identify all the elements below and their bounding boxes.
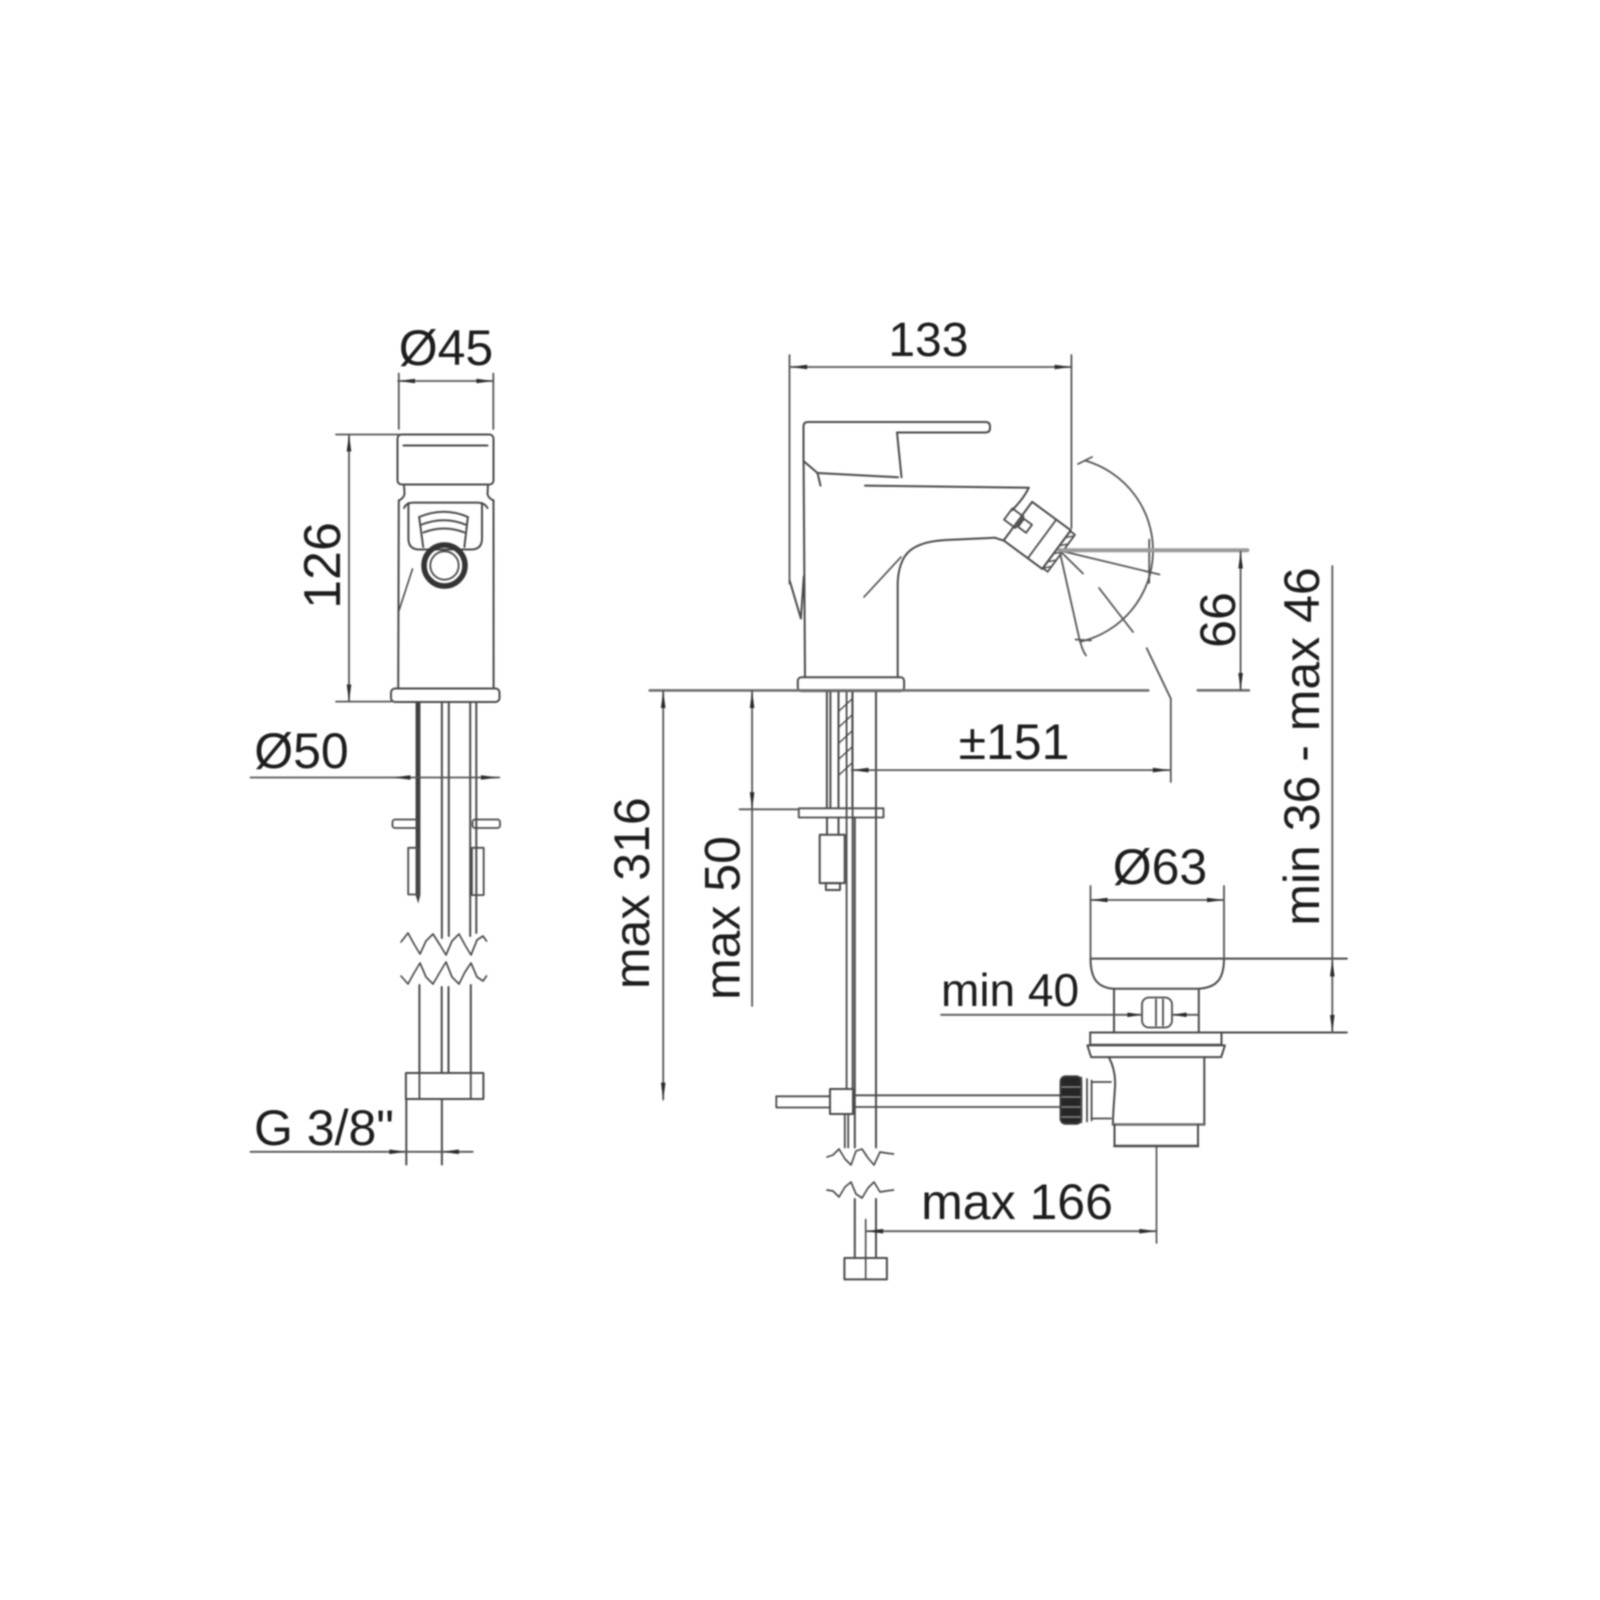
- svg-text:min 40: min 40: [941, 964, 1079, 1016]
- svg-text:min 36 - max 46: min 36 - max 46: [1274, 567, 1330, 925]
- svg-text:max 316: max 316: [604, 797, 660, 989]
- svg-text:133: 133: [888, 314, 968, 367]
- svg-text:±151: ±151: [959, 714, 1070, 770]
- svg-text:66: 66: [1190, 592, 1246, 648]
- svg-text:Ø50: Ø50: [254, 723, 349, 779]
- svg-text:max 166: max 166: [921, 1174, 1113, 1230]
- svg-text:126: 126: [294, 522, 352, 609]
- svg-text:G 3/8": G 3/8": [254, 1100, 394, 1156]
- svg-text:Ø63: Ø63: [1113, 839, 1208, 895]
- svg-text:max 50: max 50: [695, 836, 751, 1000]
- svg-text:Ø45: Ø45: [399, 320, 494, 376]
